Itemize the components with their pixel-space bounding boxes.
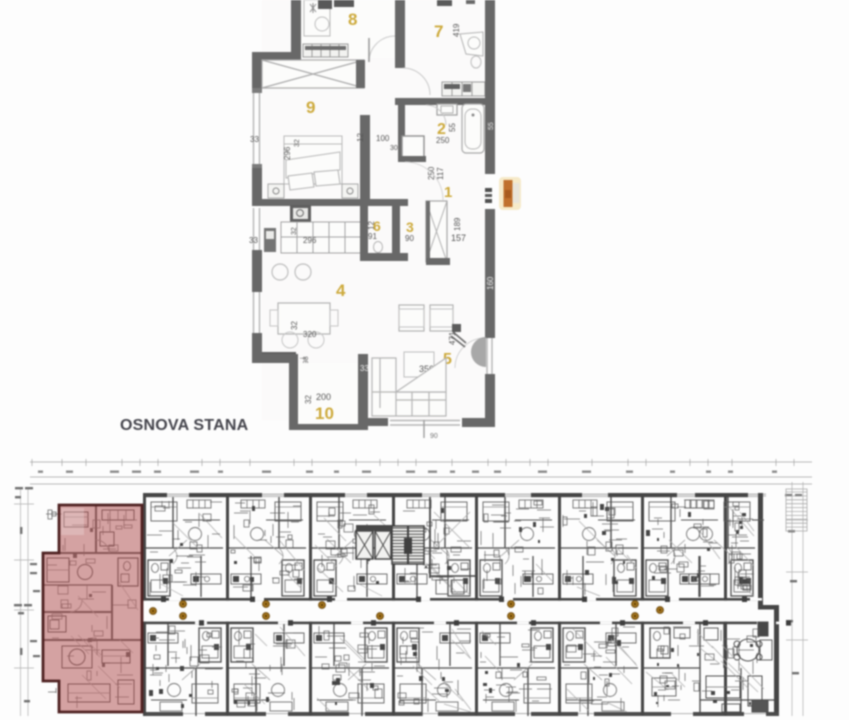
svg-text:55: 55 [448, 123, 457, 132]
svg-text:10: 10 [315, 404, 334, 423]
svg-text:157: 157 [451, 233, 466, 243]
svg-text:30: 30 [390, 145, 398, 152]
svg-text:7: 7 [434, 22, 443, 41]
svg-text:9: 9 [306, 98, 315, 117]
svg-text:33: 33 [360, 364, 369, 373]
svg-text:160: 160 [486, 276, 495, 290]
svg-text:117: 117 [436, 167, 445, 180]
svg-text:200: 200 [316, 392, 331, 402]
svg-text:33: 33 [249, 236, 258, 245]
svg-text:1: 1 [444, 184, 452, 201]
svg-text:32: 32 [294, 139, 301, 147]
svg-text:419: 419 [452, 23, 461, 37]
svg-text:8: 8 [348, 10, 357, 29]
svg-text:55: 55 [488, 122, 495, 130]
svg-text:3: 3 [406, 219, 414, 235]
svg-text:4: 4 [336, 281, 346, 300]
svg-text:90: 90 [430, 433, 438, 440]
svg-text:471: 471 [448, 331, 457, 345]
svg-text:12: 12 [356, 133, 365, 142]
svg-text:32: 32 [304, 395, 313, 404]
svg-text:250: 250 [436, 136, 450, 145]
svg-text:189: 189 [453, 217, 462, 231]
svg-text:32: 32 [290, 321, 299, 330]
svg-text:OSNOVA STANA: OSNOVA STANA [120, 417, 249, 434]
svg-text:320: 320 [303, 330, 317, 339]
svg-text:296: 296 [283, 146, 292, 160]
svg-text:91: 91 [368, 232, 377, 241]
svg-text:100: 100 [376, 134, 390, 143]
svg-text:33: 33 [250, 135, 259, 144]
svg-text:—: — [300, 356, 306, 362]
svg-text:32: 32 [291, 227, 298, 235]
svg-text:90: 90 [405, 234, 414, 243]
svg-text:296: 296 [303, 236, 317, 245]
